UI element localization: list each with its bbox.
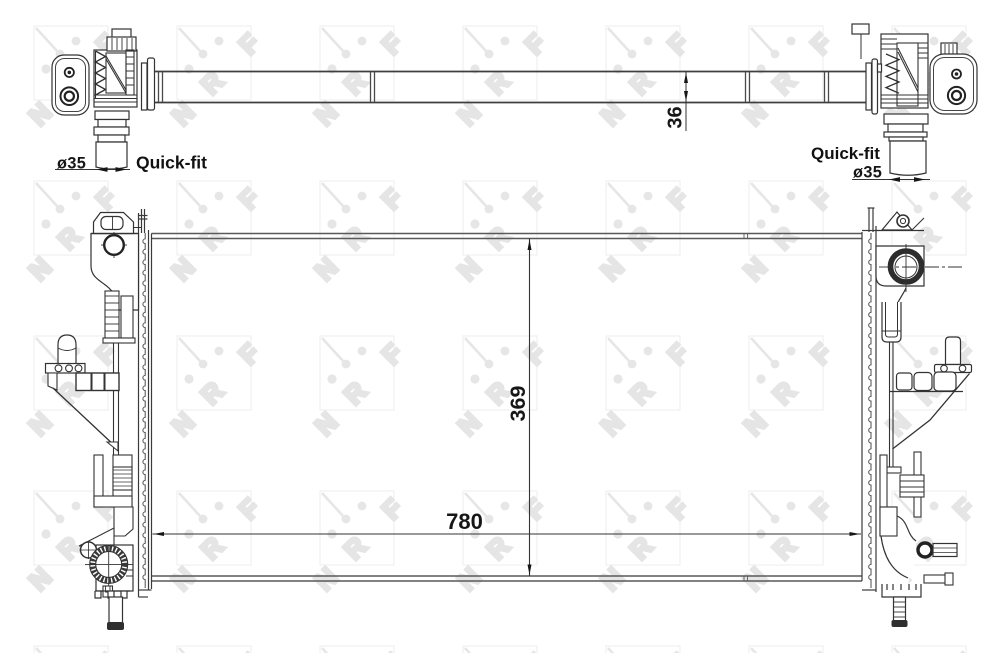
svg-text:Quick-fit: Quick-fit	[811, 144, 880, 163]
svg-text:780: 780	[446, 509, 483, 534]
svg-text:ø35: ø35	[853, 164, 882, 182]
svg-text:ø35: ø35	[57, 155, 86, 173]
svg-text:36: 36	[665, 106, 687, 128]
svg-text:Quick-fit: Quick-fit	[136, 153, 207, 173]
svg-text:369: 369	[506, 386, 530, 422]
